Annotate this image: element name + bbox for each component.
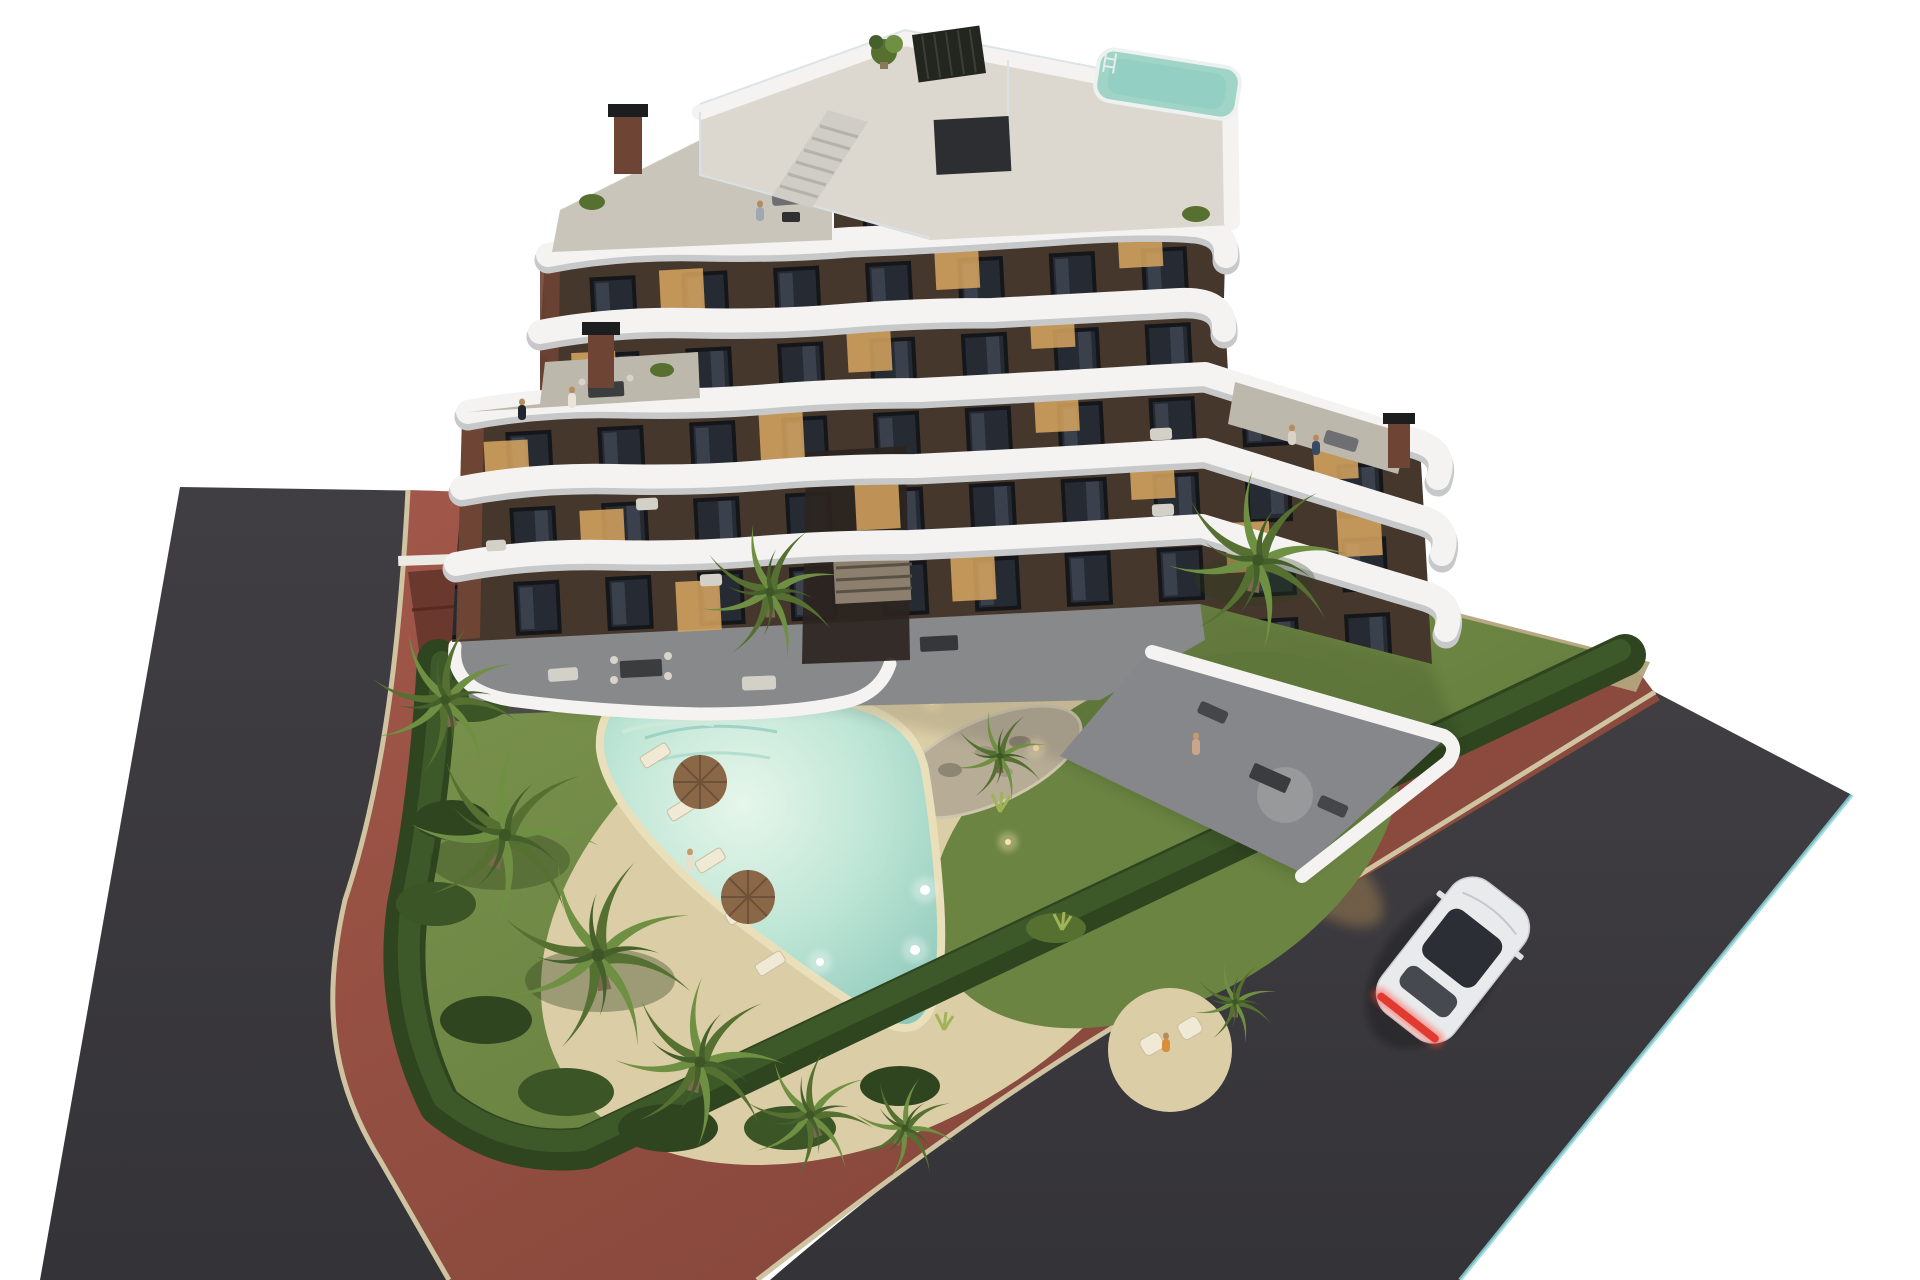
- person: [1192, 733, 1200, 756]
- render-canvas: [0, 0, 1920, 1280]
- planter: [650, 363, 674, 377]
- chair: [627, 375, 634, 382]
- chimney-cap: [1383, 413, 1415, 424]
- roof-planter: [1182, 206, 1210, 222]
- seating-nook-sand: [1108, 988, 1232, 1112]
- roof-doorway: [934, 116, 1012, 175]
- person: [756, 201, 764, 222]
- planter: [579, 194, 605, 210]
- person: [1288, 425, 1296, 446]
- person: [568, 387, 576, 409]
- coffee-table: [782, 212, 800, 222]
- chimney: [614, 112, 642, 174]
- umbrella: [721, 870, 775, 924]
- chimney-cap: [582, 322, 620, 335]
- person: [1162, 1033, 1170, 1053]
- chimney-cap: [608, 104, 648, 117]
- person: [686, 849, 694, 872]
- chimney: [1388, 420, 1410, 468]
- umbrella: [673, 755, 727, 809]
- chair: [579, 379, 586, 386]
- person: [1312, 435, 1320, 456]
- person: [518, 399, 526, 421]
- roof-pergola: [912, 26, 986, 83]
- chimney: [588, 330, 614, 388]
